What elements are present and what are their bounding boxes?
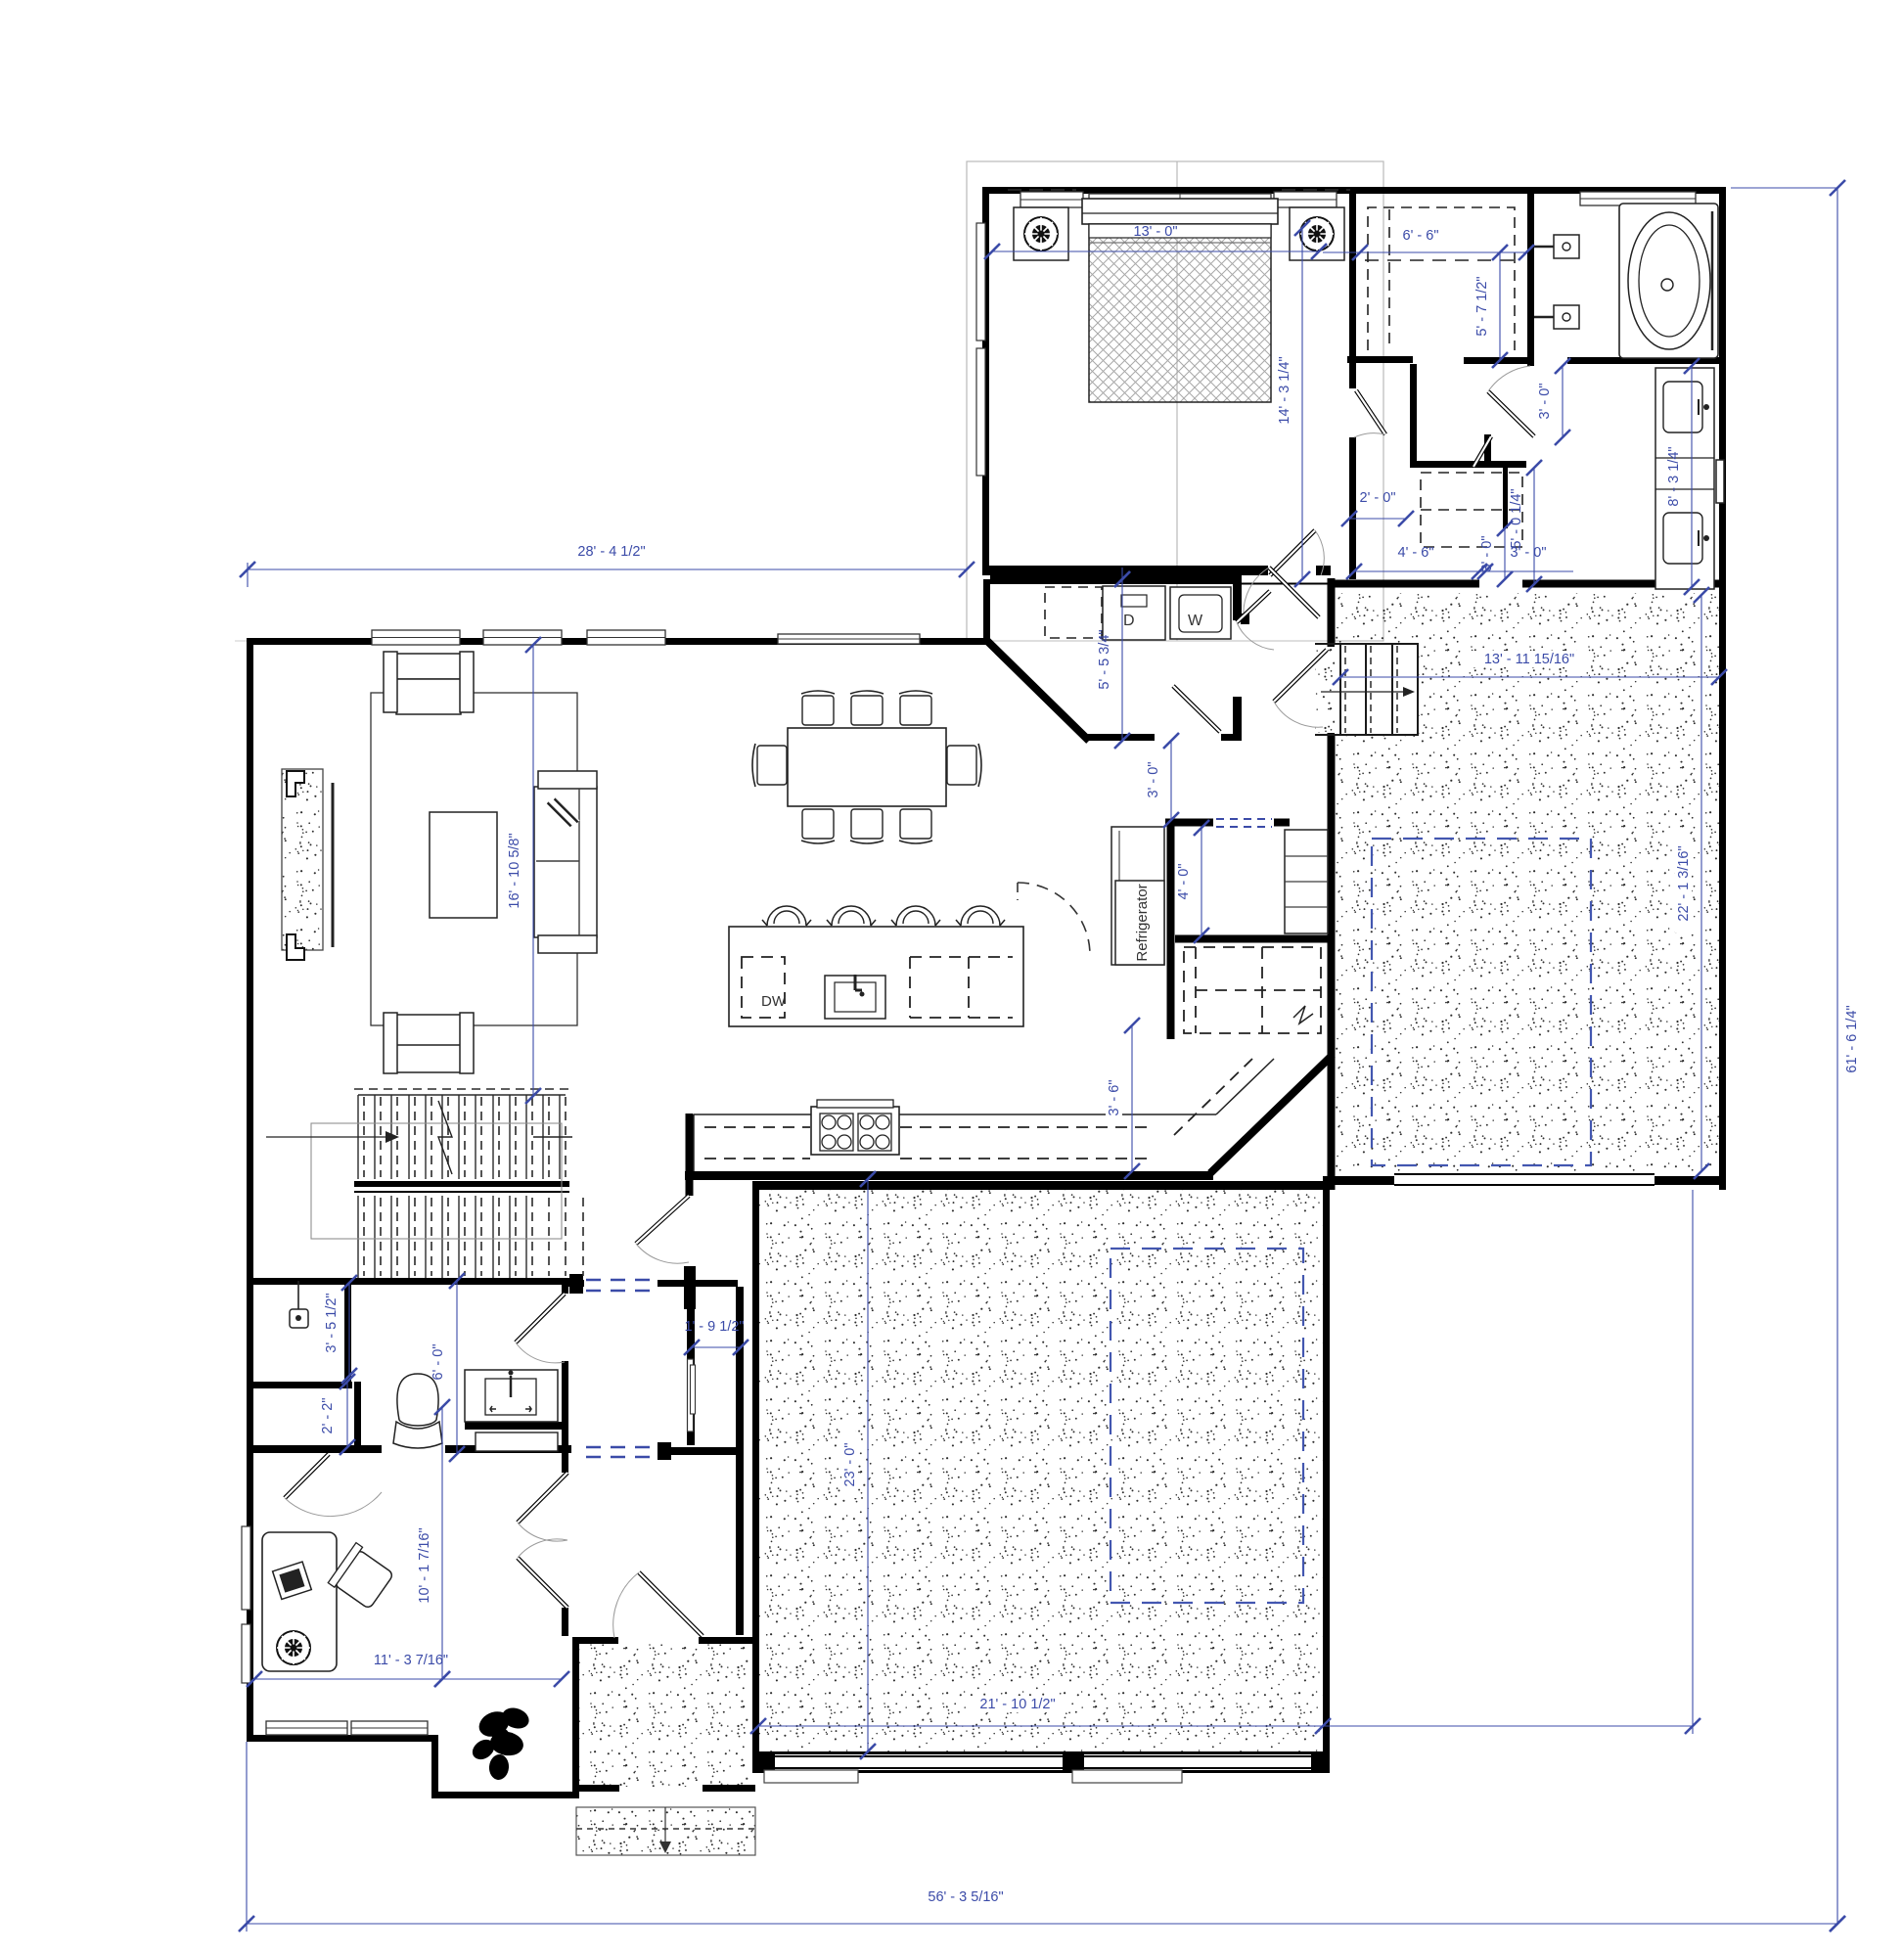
svg-text:5' - 7 1/2": 5' - 7 1/2" xyxy=(1474,276,1490,336)
svg-text:W: W xyxy=(1188,613,1203,629)
svg-text:3' - 6": 3' - 6" xyxy=(1107,1080,1122,1116)
svg-text:21' - 10 1/2": 21' - 10 1/2" xyxy=(979,1697,1055,1712)
svg-text:14' - 3 1/4": 14' - 3 1/4" xyxy=(1277,356,1292,424)
svg-text:3' - 0": 3' - 0" xyxy=(1537,384,1553,420)
svg-text:3' - 5 1/2": 3' - 5 1/2" xyxy=(324,1293,340,1352)
svg-text:10' - 1 7/16": 10' - 1 7/16" xyxy=(417,1527,432,1603)
svg-text:16' - 10 5/8": 16' - 10 5/8" xyxy=(507,833,522,908)
svg-text:Refrigerator: Refrigerator xyxy=(1134,884,1151,961)
svg-text:3' - 0": 3' - 0" xyxy=(1511,545,1547,561)
svg-text:61' - 6 1/4": 61' - 6 1/4" xyxy=(1844,1005,1860,1072)
svg-text:56' - 3 5/16": 56' - 3 5/16" xyxy=(928,1889,1003,1905)
svg-text:1' - 9 1/2": 1' - 9 1/2" xyxy=(684,1319,744,1335)
svg-text:22' - 1 3/16": 22' - 1 3/16" xyxy=(1676,845,1692,921)
svg-text:D: D xyxy=(1123,613,1135,629)
svg-text:3' - 0": 3' - 0" xyxy=(1146,762,1161,798)
svg-text:5' - 5 3/4": 5' - 5 3/4" xyxy=(1097,629,1112,689)
svg-text:4' - 6": 4' - 6" xyxy=(1398,545,1434,561)
svg-text:28' - 4 1/2": 28' - 4 1/2" xyxy=(577,544,645,560)
svg-text:6' - 0": 6' - 0" xyxy=(431,1344,446,1381)
svg-text:2' - 2": 2' - 2" xyxy=(320,1398,336,1434)
svg-text:23' - 0": 23' - 0" xyxy=(842,1443,858,1487)
svg-text:13' - 0": 13' - 0" xyxy=(1134,224,1178,240)
svg-text:5' - 0 1/4": 5' - 0 1/4" xyxy=(1509,488,1524,548)
svg-text:DW: DW xyxy=(761,993,787,1010)
svg-text:11' - 3 7/16": 11' - 3 7/16" xyxy=(374,1653,448,1668)
svg-text:2' - 0": 2' - 0" xyxy=(1360,490,1396,506)
svg-text:8' - 3 1/4": 8' - 3 1/4" xyxy=(1666,446,1682,506)
svg-text:3' - 0": 3' - 0" xyxy=(1479,536,1495,572)
svg-text:4' - 0": 4' - 0" xyxy=(1176,864,1192,900)
svg-text:13' - 11 15/16": 13' - 11 15/16" xyxy=(1484,652,1574,667)
svg-text:6' - 6": 6' - 6" xyxy=(1403,228,1439,244)
